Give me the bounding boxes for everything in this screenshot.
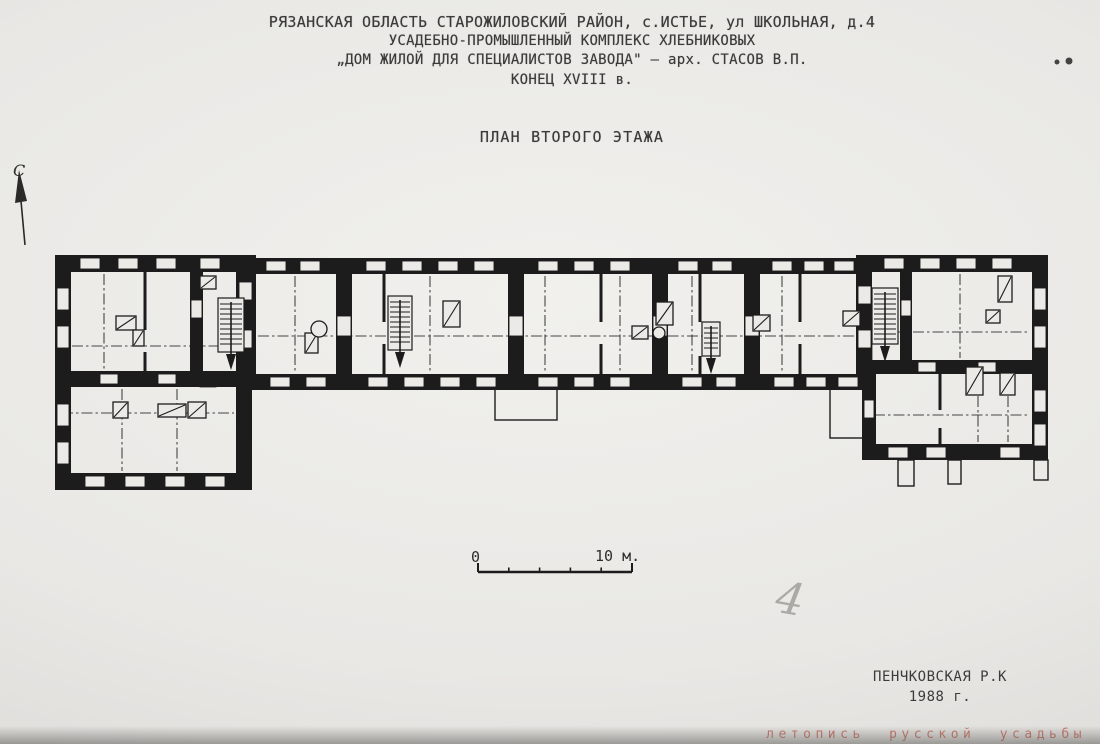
window-opening: [574, 261, 594, 271]
window-opening: [918, 362, 936, 372]
stair-arrow-head: [395, 352, 405, 368]
window-opening: [57, 326, 69, 348]
scale-end-label: 10 м.: [595, 547, 640, 565]
wall-hatch: [594, 375, 610, 389]
window-opening: [888, 447, 908, 458]
window-opening: [366, 261, 386, 271]
window-opening: [80, 258, 100, 269]
window-opening: [682, 377, 702, 387]
window-opening: [1000, 447, 1020, 458]
stove-symbol-round: [311, 321, 327, 337]
window-opening: [200, 258, 220, 269]
window-opening: [337, 316, 351, 336]
window-opening: [1034, 288, 1046, 310]
window-opening: [858, 286, 871, 304]
window-opening: [574, 377, 594, 387]
window-opening: [1034, 390, 1046, 412]
window-opening: [538, 261, 558, 271]
window-opening: [191, 300, 202, 318]
porch-outline: [495, 388, 557, 420]
window-opening: [118, 258, 138, 269]
window-opening: [920, 258, 940, 269]
window-opening: [404, 377, 424, 387]
window-opening: [884, 258, 904, 269]
window-opening: [509, 316, 523, 336]
window-opening: [901, 300, 911, 316]
photo-speck: [1055, 60, 1060, 65]
watermark-text: летопись русской усадьбы: [766, 727, 1086, 742]
window-opening: [834, 261, 854, 271]
pillar: [1034, 460, 1048, 480]
stove-symbol-round: [653, 327, 665, 339]
wall-segment: [55, 371, 252, 387]
window-opening: [774, 377, 794, 387]
wall-segment: [862, 360, 1048, 374]
stair-arrow-head: [706, 358, 716, 374]
window-opening: [804, 261, 824, 271]
stair-arrow-head: [226, 354, 236, 370]
window-opening: [956, 258, 976, 269]
window-opening: [1034, 326, 1046, 348]
window-opening: [992, 258, 1012, 269]
window-opening: [300, 261, 320, 271]
pillar: [898, 460, 914, 486]
window-opening: [610, 261, 630, 271]
window-opening: [158, 374, 176, 384]
floor-plan-drawing: С: [0, 0, 1100, 744]
window-opening: [474, 261, 494, 271]
window-opening: [806, 377, 826, 387]
window-opening: [239, 282, 252, 300]
window-opening: [678, 261, 698, 271]
window-opening: [165, 476, 185, 487]
window-opening: [772, 261, 792, 271]
window-opening: [610, 377, 630, 387]
wall-segment: [236, 387, 252, 490]
wall-hatch: [962, 445, 981, 459]
photo-of-drawing: РЯЗАНСКАЯ ОБЛАСТЬ СТАРОЖИЛОВСКИЙ РАЙОН, …: [0, 0, 1100, 744]
north-arrow: С: [13, 161, 27, 245]
photo-speck: [1066, 58, 1073, 65]
window-opening: [864, 400, 874, 418]
window-opening: [266, 261, 286, 271]
window-opening: [438, 261, 458, 271]
window-opening: [156, 258, 176, 269]
window-opening: [100, 374, 118, 384]
window-opening: [125, 476, 145, 487]
window-opening: [57, 404, 69, 426]
wall-hatch: [200, 372, 216, 387]
window-opening: [1034, 424, 1046, 446]
wall-segment: [900, 272, 912, 362]
window-opening: [402, 261, 422, 271]
window-opening: [712, 261, 732, 271]
window-opening: [838, 377, 858, 387]
wall-hatch: [354, 375, 368, 389]
window-opening: [205, 476, 225, 487]
window-opening: [57, 442, 69, 464]
window-opening: [858, 330, 871, 348]
window-opening: [476, 377, 496, 387]
window-opening: [306, 377, 326, 387]
drawing-year: 1988 г.: [840, 689, 1040, 705]
window-opening: [440, 377, 460, 387]
north-arrow-shaft: [21, 201, 25, 245]
window-opening: [926, 447, 946, 458]
pillar: [948, 460, 961, 484]
window-opening: [538, 377, 558, 387]
window-opening: [368, 377, 388, 387]
author-name: ПЕНЧКОВСКАЯ Р.К: [840, 669, 1040, 685]
window-opening: [716, 377, 736, 387]
scale-zero-label: 0: [471, 548, 480, 566]
stair-arrow-head: [880, 346, 890, 362]
wall-hatch: [794, 375, 806, 389]
window-opening: [57, 288, 69, 310]
window-opening: [270, 377, 290, 387]
window-opening: [85, 476, 105, 487]
